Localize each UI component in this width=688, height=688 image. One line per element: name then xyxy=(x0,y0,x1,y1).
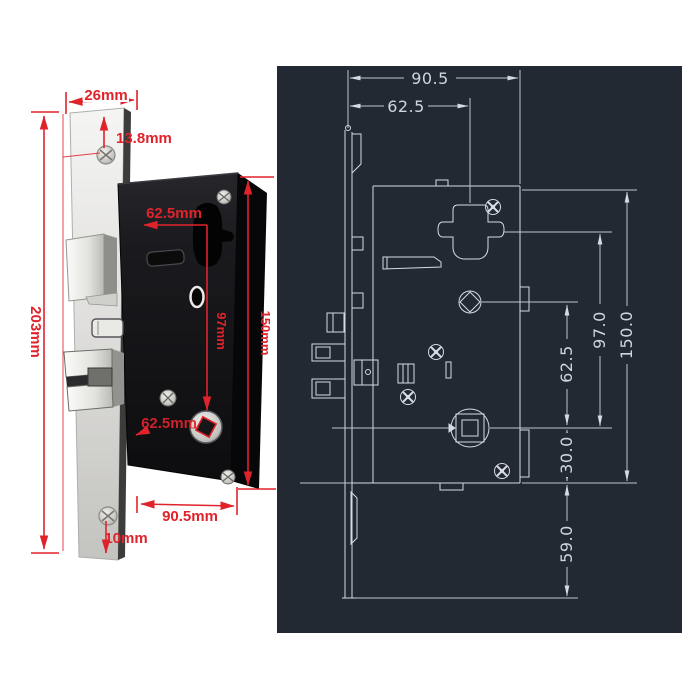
lock-photo: 26mm 13.8mm 203mm 62.5mm 97mm xyxy=(27,86,276,560)
photo-dim-label-203mm: 203mm xyxy=(27,306,44,358)
mortise-lock-dimension-sheet: 26mm 13.8mm 203mm 62.5mm 97mm xyxy=(0,0,688,688)
cad-dim-label-150-0: 150.0 xyxy=(617,311,636,359)
dim-plate-height: 203mm xyxy=(27,112,63,553)
cad-dim-label-59-0: 59.0 xyxy=(557,525,576,563)
deadbolt xyxy=(64,349,124,411)
cad-dim-label-90-5: 90.5 xyxy=(411,69,449,88)
latch-bolt xyxy=(66,234,117,306)
cad-dim-label-30-0: 30.0 xyxy=(557,436,576,474)
lock-dimension-graphic: 26mm 13.8mm 203mm 62.5mm 97mm xyxy=(0,0,688,688)
photo-dim-label-26mm: 26mm xyxy=(84,87,127,104)
dim-body-width: 90.5mm xyxy=(137,487,237,525)
aux-bolt xyxy=(92,319,123,337)
screw-icon xyxy=(160,390,176,406)
screw-icon xyxy=(217,190,231,204)
lever-slot xyxy=(146,249,184,266)
oval-hole xyxy=(191,287,204,307)
photo-dim-label-150mm: 150mm xyxy=(258,311,273,356)
photo-dim-label-13-8mm: 13.8mm xyxy=(116,130,172,147)
cad-dim-label-62-5-right: 62.5 xyxy=(557,345,576,383)
photo-dim-label-62-5mm-top: 62.5mm xyxy=(146,205,202,222)
screw-icon xyxy=(97,146,115,164)
screw-icon xyxy=(99,507,117,525)
photo-dim-label-10mm: 10mm xyxy=(104,530,147,547)
photo-dim-label-97mm: 97mm xyxy=(214,312,229,350)
cad-diagram: 90.5 62.5 62.5 97.0 150.0 30.0 59.0 xyxy=(277,66,682,633)
photo-dim-label-90-5mm: 90.5mm xyxy=(162,508,218,525)
screw-icon xyxy=(221,470,235,484)
photo-dim-label-62-5mm-bottom: 62.5mm xyxy=(141,415,197,432)
cad-dim-label-62-5-top: 62.5 xyxy=(387,97,425,116)
cad-dim-label-97-0: 97.0 xyxy=(590,311,609,349)
